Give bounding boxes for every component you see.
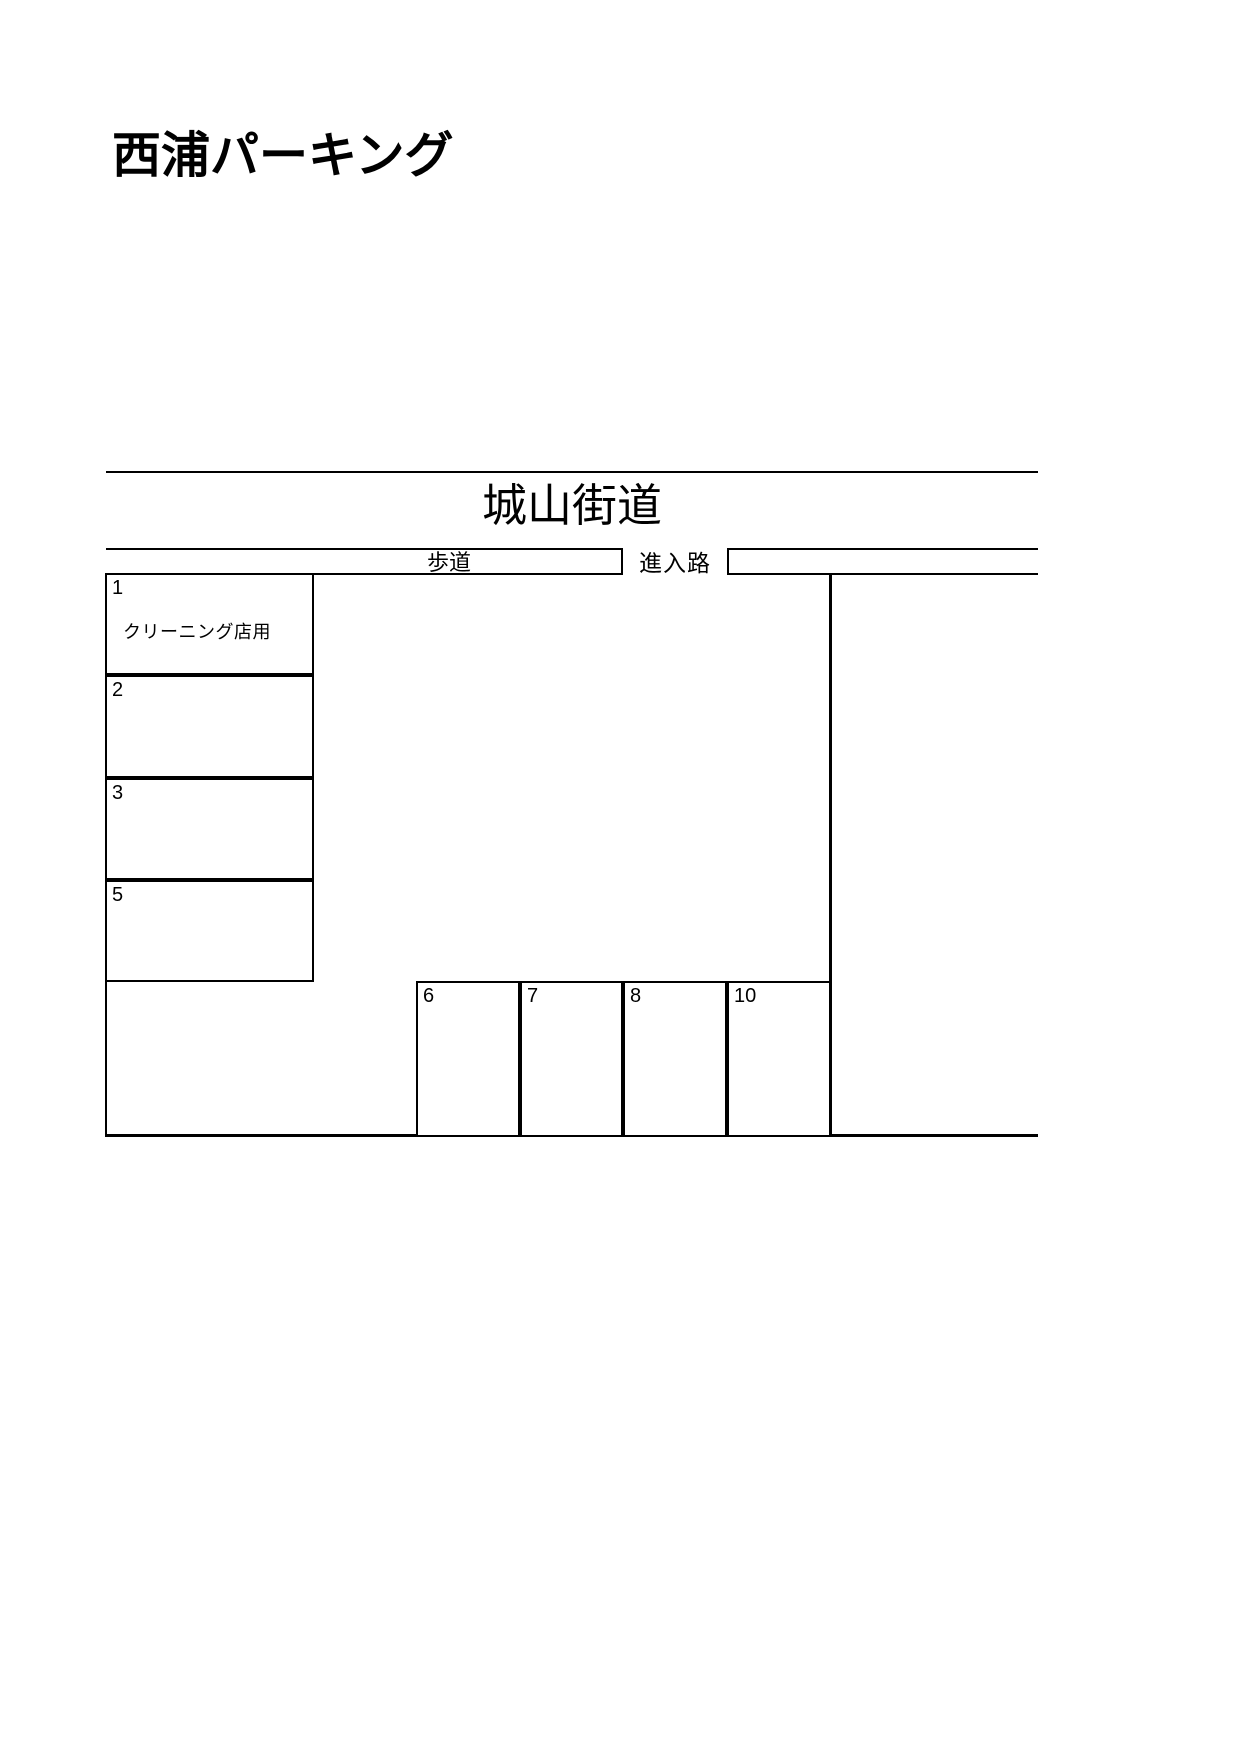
road-top-line	[106, 471, 1038, 473]
road-name-label: 城山街道	[106, 481, 1038, 531]
parking-space-10: 10	[727, 981, 831, 1137]
parking-map-page: 西浦パーキング 城山街道 歩道 進入路 1 クリーニング店用 2 3 5 6 7…	[0, 0, 1241, 1755]
space-8-number: 8	[630, 986, 641, 1007]
space-7-number: 7	[527, 986, 538, 1007]
entrance-label: 進入路	[623, 551, 727, 575]
parking-space-6: 6	[416, 981, 520, 1137]
space-1-note: クリーニング店用	[123, 618, 271, 644]
sidewalk-label: 歩道	[427, 551, 471, 574]
space-5-number: 5	[112, 885, 123, 906]
space-2-number: 2	[112, 680, 123, 701]
parking-space-2: 2	[105, 675, 314, 778]
space-10-number: 10	[734, 986, 756, 1007]
space-3-number: 3	[112, 783, 123, 804]
parking-space-8: 8	[623, 981, 727, 1137]
sidewalk-left-top-line	[106, 548, 623, 550]
parking-space-1: 1 クリーニング店用	[105, 573, 314, 675]
parking-space-5: 5	[105, 880, 314, 982]
sidewalk-right-start-cap	[727, 548, 729, 575]
space-1-number: 1	[112, 578, 123, 599]
sidewalk-right-bottom-line	[727, 573, 1038, 575]
parking-space-7: 7	[520, 981, 623, 1137]
space-6-number: 6	[423, 986, 434, 1007]
sidewalk-right-top-line	[727, 548, 1038, 550]
page-title: 西浦パーキング	[112, 130, 454, 184]
parking-space-3: 3	[105, 778, 314, 880]
